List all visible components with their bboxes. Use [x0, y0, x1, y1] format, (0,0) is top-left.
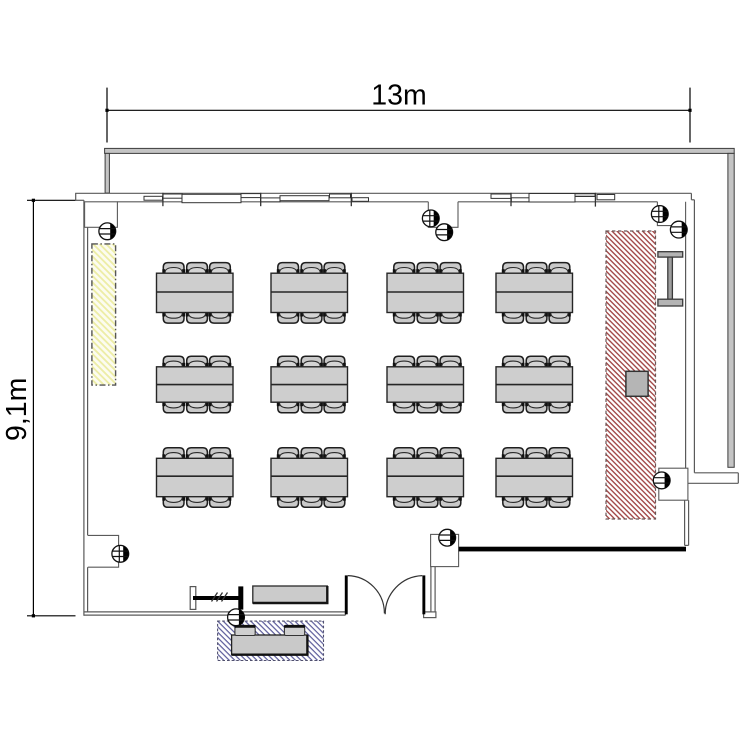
svg-text:13m: 13m — [371, 80, 426, 112]
svg-text:9,1m: 9,1m — [1, 378, 33, 441]
